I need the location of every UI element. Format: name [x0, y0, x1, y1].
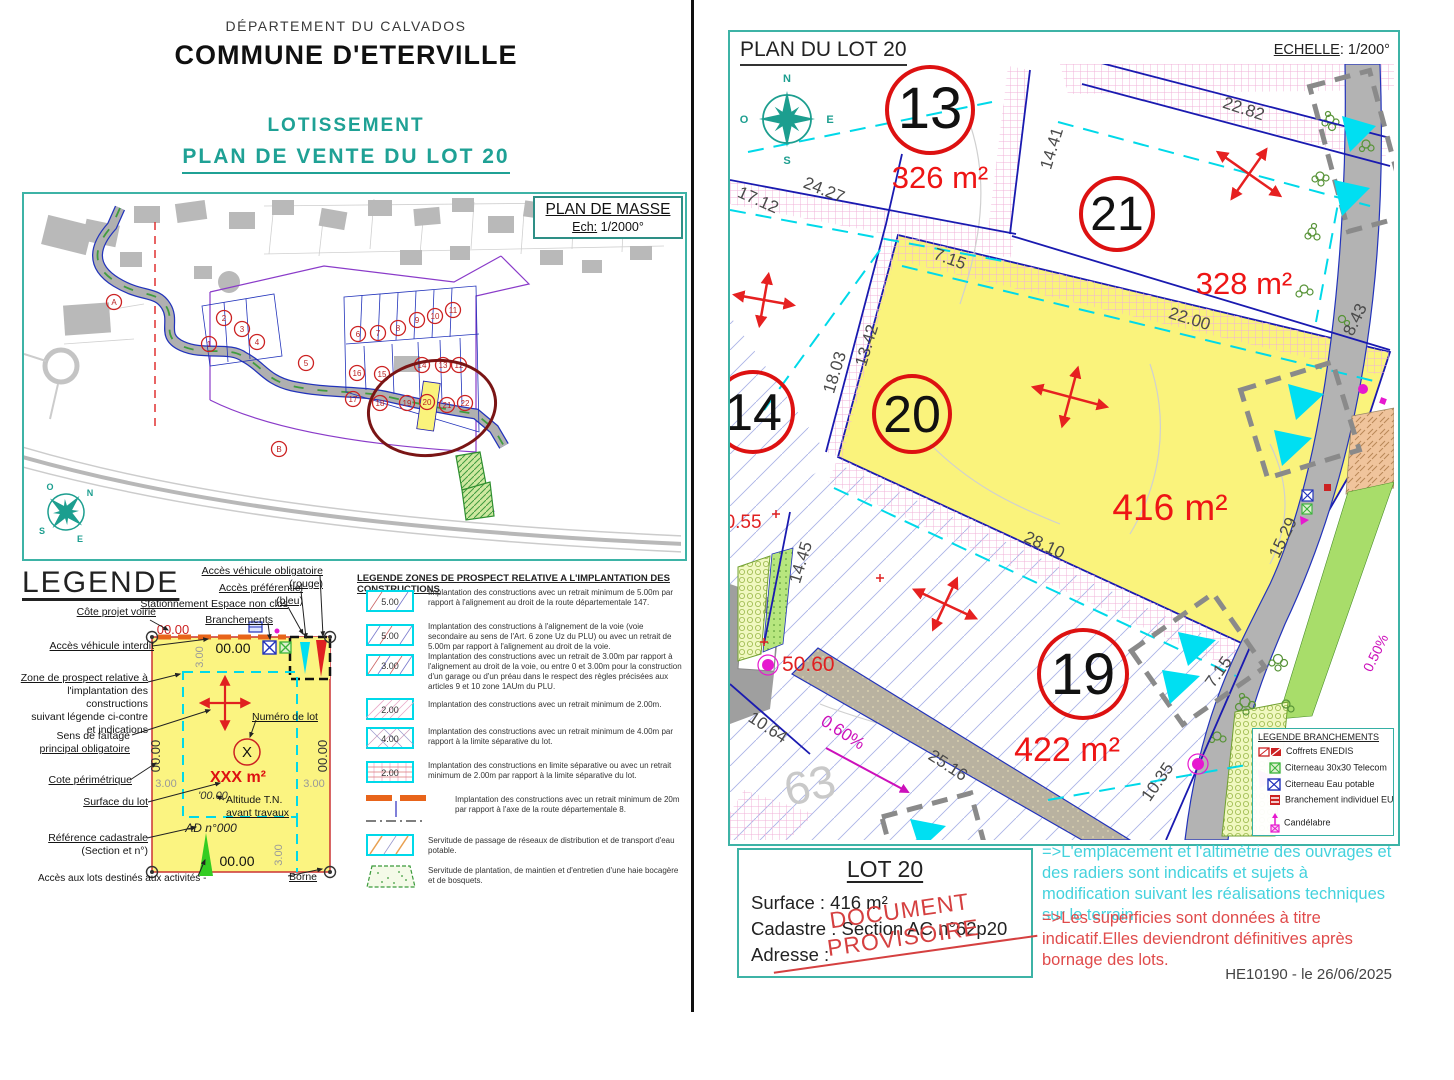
legend-item-eau: Citerneau Eau potable	[1267, 778, 1375, 791]
masse-zone-B: B	[272, 442, 287, 457]
svg-text:3.00: 3.00	[194, 646, 206, 667]
plan-de-masse: PLAN DE MASSE Ech: 1/2000°	[22, 192, 687, 561]
svg-text:E: E	[826, 114, 833, 126]
svg-text:N: N	[87, 488, 94, 498]
lot19-area: 422 m²	[1014, 731, 1120, 769]
svg-text:6: 6	[356, 330, 361, 339]
info-box-title: LOT 20	[739, 856, 1031, 883]
lotissement-subtitle: LOTISSEMENT	[0, 115, 692, 137]
department-label: DÉPARTEMENT DU CALVADOS	[0, 18, 692, 34]
svg-text:4.00: 4.00	[381, 734, 399, 744]
legend-zone-text-9: Servitude de plantation, de maintien et …	[428, 866, 682, 886]
citerneau-eau-icon	[1267, 778, 1281, 791]
swatch-limite-separative-2m: 2.00	[366, 761, 414, 783]
lot14-number: 14	[730, 384, 782, 442]
masse-lot-16: 16	[350, 366, 365, 381]
svg-text:5.00: 5.00	[381, 631, 399, 641]
legend-item-telecom: Citerneau 30x30 Telecom	[1269, 762, 1387, 774]
svg-text:4: 4	[255, 338, 260, 347]
svg-text:5: 5	[304, 359, 309, 368]
masse-lot-3: 3	[235, 322, 250, 337]
lot20-number: 20	[883, 386, 941, 444]
callout-surface-lot: Surface du lot	[58, 796, 148, 809]
branchement-eu-icon	[1269, 794, 1281, 806]
plan-du-lot-frame: PLAN DU LOT 20 ECHELLE: 1/200°	[728, 30, 1400, 846]
plan-scale: ECHELLE: 1/200°	[1274, 42, 1390, 58]
legend-zone-text-4: Implantation des constructions avec un r…	[428, 700, 682, 710]
lot19-number: 19	[1051, 642, 1116, 707]
svg-text:3: 3	[240, 325, 245, 334]
masse-lot-11: 11	[446, 303, 461, 318]
svg-text:3.00: 3.00	[155, 778, 176, 790]
lot21-number: 21	[1090, 188, 1143, 241]
svg-text:00.00: 00.00	[315, 740, 330, 773]
lot20-detail-plan: 63 17.12 24.27 14.41 22.82 7.15 13.42 18…	[730, 64, 1394, 840]
masse-lot-10: 10	[428, 309, 443, 324]
plan-de-masse-scale-value: 1/2000°	[601, 220, 644, 234]
swatch-retrait-2m: 2.00	[366, 698, 414, 720]
lot21-area: 328 m²	[1196, 266, 1292, 301]
svg-text:E: E	[77, 534, 83, 544]
swatch-servitude-plantation	[366, 864, 416, 890]
svg-text:3.00: 3.00	[381, 661, 399, 671]
svg-text:13: 13	[439, 361, 448, 370]
gray-background-number: 63	[779, 754, 840, 816]
svg-text:17: 17	[349, 395, 358, 404]
swatch-retrait-20m-rd8	[366, 791, 430, 825]
svg-text:O: O	[740, 114, 749, 126]
svg-text:A: A	[111, 298, 117, 307]
legend-zone-text-7: Implantation des constructions avec un r…	[455, 795, 683, 815]
masse-compass-icon: N E S O	[36, 482, 95, 544]
plan-compass-icon: N E S O	[740, 73, 834, 167]
callout-acces-interdit: Accès véhicule interdit	[38, 640, 154, 653]
legend-zone-text-6: Implantation des constructions en limite…	[428, 761, 682, 781]
masse-lot-6: 6	[351, 327, 366, 342]
legend-zone-text-3: Implantation des constructions avec un r…	[428, 652, 682, 692]
svg-text:00.00: 00.00	[148, 740, 163, 773]
swatch-servitude-eau	[366, 834, 414, 856]
legend-zone-text-8: Servitude de passage de réseaux de distr…	[428, 836, 682, 856]
highway	[24, 350, 681, 552]
page-title: PLAN DE VENTE DU LOT 20	[182, 145, 509, 174]
svg-text:N: N	[783, 73, 791, 85]
masse-lot-2: 2	[217, 311, 232, 326]
swatch-retrait-3m: 3.00	[366, 654, 414, 676]
svg-text:1: 1	[207, 340, 212, 349]
svg-text:3.00: 3.00	[303, 778, 324, 790]
plan-de-masse-scale-label: Ech:	[572, 220, 597, 234]
candelabre-icon	[1270, 813, 1280, 833]
svg-text:B: B	[276, 445, 281, 454]
svg-text:'00.00: '00.00	[198, 790, 229, 802]
svg-text:O: O	[46, 482, 53, 492]
note-superficies: =>Les superficies sont données à titre i…	[1042, 908, 1394, 971]
masse-lot-5: 5	[299, 356, 314, 371]
callout-cote-perimetrique: Cote périmétrique	[28, 774, 132, 787]
page-divider	[691, 0, 694, 1012]
svg-text:00.00: 00.00	[157, 622, 190, 637]
svg-text:14.41: 14.41	[1036, 125, 1067, 171]
svg-text:00.00: 00.00	[219, 853, 254, 869]
legend-zone-text-1: Implantation des constructions avec un r…	[428, 588, 682, 608]
svg-text:10: 10	[431, 312, 440, 321]
plan-de-masse-title: PLAN DE MASSE	[537, 201, 679, 219]
swatch-alignement-voie: 5.00	[366, 624, 414, 646]
legend-item-coffrets: Coffrets ENEDIS	[1258, 746, 1353, 757]
green-patches	[456, 452, 494, 520]
callout-numero-lot: Numéro de lot	[252, 711, 322, 724]
svg-text:19: 19	[403, 399, 412, 408]
document-reference: HE10190 - le 26/06/2025	[1178, 966, 1392, 983]
plan-de-masse-map: A B 1 2 3 4 5 6 7 8 9 10 11 12 13 14 15 …	[24, 194, 681, 555]
swatch-retrait-4m: 4.00	[366, 727, 414, 749]
callout-altitude-tn: Altitude T.N.avant travaux	[226, 794, 296, 820]
svg-text:2.00: 2.00	[381, 705, 399, 715]
callout-zone-prospect: Zone de prospect relative àl'implantatio…	[3, 672, 148, 737]
citerneau-telecom-icon	[1269, 762, 1281, 774]
callout-sens-faitage: Sens de faîtageprincipal obligatoire	[18, 730, 130, 756]
lot13-number: 13	[898, 76, 963, 141]
svg-text:8: 8	[396, 324, 401, 333]
legend-zone-text-5: Implantation des constructions avec un r…	[428, 727, 682, 747]
new-road	[98, 208, 505, 446]
svg-text:11: 11	[449, 306, 458, 315]
coffrets-enedis-icon	[1258, 747, 1282, 757]
svg-text:0.50%: 0.50%	[1360, 631, 1392, 674]
callout-reference-cadastrale: Référence cadastrale(Section et n°)	[28, 832, 148, 858]
plan-du-lot-title: PLAN DU LOT 20	[740, 38, 907, 66]
svg-text:20: 20	[423, 398, 432, 407]
masse-lot-8: 8	[391, 321, 406, 336]
svg-text:18: 18	[376, 399, 385, 408]
svg-text:X: X	[242, 744, 252, 761]
svg-text:2: 2	[222, 314, 227, 323]
callout-branchements: Branchements	[205, 614, 273, 627]
lot20-area: 416 m²	[1112, 487, 1227, 528]
swatch-retrait-5m-rd147: 5.00	[366, 590, 414, 612]
svg-text:9: 9	[415, 316, 420, 325]
callout-borne: Borne	[289, 871, 329, 884]
svg-text:5.00: 5.00	[381, 597, 399, 607]
svg-text:16: 16	[353, 369, 362, 378]
svg-text:21: 21	[443, 401, 452, 410]
svg-text:S: S	[39, 526, 45, 536]
callout-acces-activites: Accès aux lots destinés aux activités -	[38, 872, 248, 885]
masse-zone-A: A	[107, 295, 122, 310]
left-page-header: DÉPARTEMENT DU CALVADOS COMMUNE D'ETERVI…	[0, 0, 692, 174]
svg-text:2.00: 2.00	[381, 768, 399, 778]
svg-text:00.00: 00.00	[215, 640, 250, 656]
masse-lot-9: 9	[410, 313, 425, 328]
callout-stationnement: Stationnement Espace non clos	[122, 598, 288, 611]
plan-de-vente-document: { "left_page": { "department": "DÉPARTEM…	[0, 0, 1454, 1080]
branchements-legend: LEGENDE BRANCHEMENTS Coffrets ENEDIS Cit…	[1252, 728, 1394, 836]
branchements-legend-title: LEGENDE BRANCHEMENTS	[1258, 732, 1379, 742]
commune-title: COMMUNE D'ETERVILLE	[0, 40, 692, 71]
masse-lot-numbers: A B 1 2 3 4 5 6 7 8 9 10 11 12 13 14 15 …	[107, 295, 473, 457]
legend-item-candelabre: Candélabre	[1270, 813, 1331, 833]
svg-text:22: 22	[461, 399, 470, 408]
svg-text:50.55: 50.55	[730, 512, 762, 533]
lot13-area: 326 m²	[892, 160, 988, 195]
svg-text:3.00: 3.00	[273, 844, 285, 865]
svg-text:7: 7	[376, 329, 381, 338]
svg-text:S: S	[783, 155, 790, 167]
plan-de-masse-label: PLAN DE MASSE Ech: 1/2000°	[533, 196, 683, 239]
svg-text:50.60: 50.60	[782, 653, 835, 676]
legend-item-eu: Branchement individuel EU	[1269, 794, 1394, 806]
masse-lot-4: 4	[250, 335, 265, 350]
legend-zone-text-2: Implantation des constructions à l'align…	[428, 622, 682, 652]
